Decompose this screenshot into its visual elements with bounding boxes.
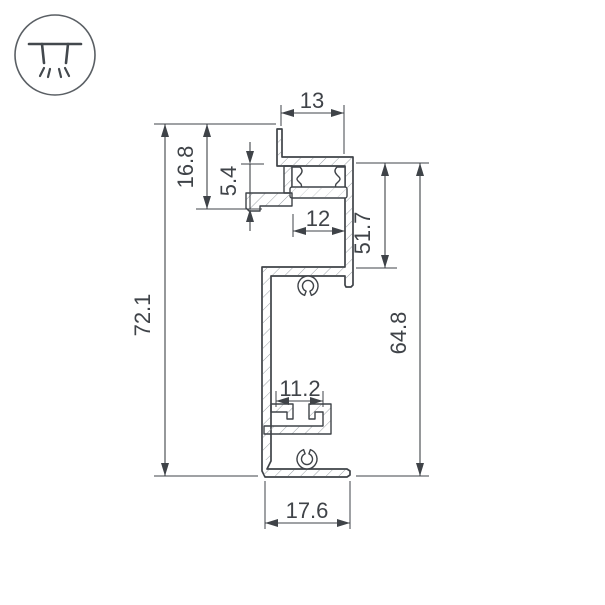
drawing-page: 13 72.1 16.8 5.4 12 51.7 64.8: [0, 0, 605, 605]
dim-label-lip-height: 16.8: [173, 146, 198, 189]
dimension-total-height: 72.1: [130, 124, 169, 476]
dim-label-lip-inset: 5.4: [216, 166, 241, 197]
dimension-mount-slot-width: 11.2: [276, 376, 323, 405]
dim-label-diffuser-opening: 12: [306, 206, 330, 231]
dimension-top-width: 13: [281, 88, 344, 117]
profile-technical-drawing: 13 72.1 16.8 5.4 12 51.7 64.8: [0, 0, 605, 605]
profile-body: [246, 129, 353, 477]
icon-circle: [15, 15, 95, 95]
mounting-slot-bracket: [264, 404, 331, 434]
dim-label-body-height: 64.8: [386, 312, 411, 355]
dim-label-top-width: 13: [300, 88, 324, 113]
dimension-lip-height: 16.8: [173, 124, 211, 209]
dimension-diffuser-opening: 12: [293, 206, 345, 235]
dimension-body-height: 64.8: [386, 163, 424, 476]
dim-label-mount-slot-width: 11.2: [279, 376, 320, 401]
dim-label-base-width: 17.6: [286, 498, 329, 523]
trim-lip: [246, 193, 292, 211]
screw-boss-lower: [297, 450, 317, 469]
dimension-lip-inset: 5.4: [216, 142, 254, 231]
dimension-base-width: 17.6: [265, 498, 350, 527]
dim-label-upper-section-height: 51.7: [350, 212, 375, 255]
recessed-downlight-icon: [15, 15, 95, 95]
dimension-upper-section-height: 51.7: [350, 163, 389, 268]
dim-label-total-height: 72.1: [130, 294, 155, 337]
screw-boss-upper: [298, 276, 318, 295]
diffuser-plate: [290, 187, 347, 198]
